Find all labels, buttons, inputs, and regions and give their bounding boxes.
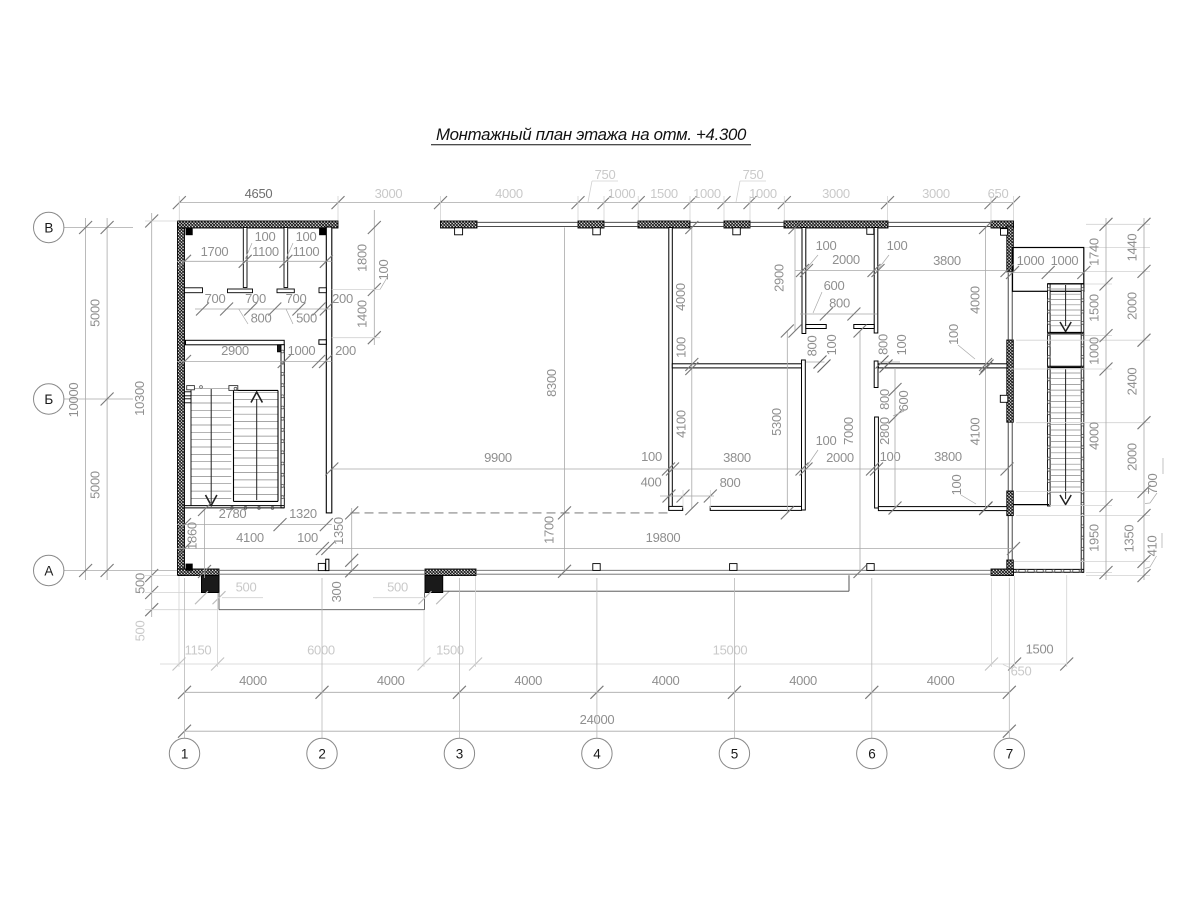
- svg-text:4000: 4000: [789, 673, 817, 688]
- svg-text:1740: 1740: [1087, 238, 1102, 266]
- svg-text:3000: 3000: [375, 186, 403, 201]
- svg-text:800: 800: [805, 336, 820, 357]
- svg-text:1000: 1000: [288, 343, 316, 358]
- svg-text:700: 700: [286, 291, 307, 306]
- svg-text:10000: 10000: [66, 383, 81, 418]
- svg-text:1950: 1950: [1087, 524, 1102, 552]
- svg-text:3800: 3800: [933, 253, 961, 268]
- svg-text:4000: 4000: [673, 283, 688, 311]
- svg-text:100: 100: [824, 335, 839, 356]
- svg-text:4000: 4000: [514, 673, 542, 688]
- svg-text:700: 700: [1145, 474, 1160, 495]
- svg-text:4100: 4100: [236, 530, 264, 545]
- svg-text:1500: 1500: [650, 186, 678, 201]
- svg-text:200: 200: [335, 343, 356, 358]
- svg-text:9900: 9900: [484, 450, 512, 465]
- svg-text:5000: 5000: [88, 471, 103, 499]
- svg-text:В: В: [44, 221, 53, 236]
- svg-text:1000: 1000: [1051, 253, 1079, 268]
- svg-text:2000: 2000: [1125, 292, 1140, 320]
- svg-text:2400: 2400: [1125, 368, 1140, 396]
- svg-text:100: 100: [376, 260, 391, 281]
- svg-text:100: 100: [816, 238, 837, 253]
- svg-text:1800: 1800: [355, 244, 370, 272]
- svg-text:2900: 2900: [772, 264, 787, 292]
- svg-text:100: 100: [296, 229, 317, 244]
- svg-text:4: 4: [593, 747, 601, 762]
- svg-text:1400: 1400: [355, 300, 370, 328]
- svg-text:3800: 3800: [723, 450, 751, 465]
- svg-text:400: 400: [641, 475, 662, 490]
- svg-text:100: 100: [816, 433, 837, 448]
- svg-text:2780: 2780: [219, 506, 247, 521]
- svg-text:А: А: [44, 564, 53, 579]
- svg-text:5000: 5000: [88, 299, 103, 327]
- svg-text:800: 800: [877, 389, 892, 410]
- svg-text:5: 5: [731, 747, 738, 762]
- svg-text:3800: 3800: [934, 449, 962, 464]
- svg-text:500: 500: [296, 311, 317, 326]
- svg-text:600: 600: [896, 391, 911, 412]
- svg-text:500: 500: [387, 580, 408, 595]
- svg-text:2000: 2000: [826, 450, 854, 465]
- svg-text:600: 600: [824, 278, 845, 293]
- svg-text:500: 500: [236, 580, 257, 595]
- svg-text:4000: 4000: [968, 286, 983, 314]
- svg-text:4000: 4000: [927, 673, 955, 688]
- svg-text:700: 700: [205, 291, 226, 306]
- svg-text:3000: 3000: [822, 186, 850, 201]
- svg-text:10300: 10300: [132, 381, 147, 416]
- svg-text:100: 100: [949, 475, 964, 496]
- svg-text:4000: 4000: [377, 673, 405, 688]
- svg-text:4650: 4650: [245, 186, 273, 201]
- svg-text:800: 800: [829, 296, 850, 311]
- svg-text:750: 750: [595, 167, 616, 182]
- svg-text:1100: 1100: [252, 244, 279, 259]
- svg-text:2800: 2800: [877, 417, 892, 445]
- svg-text:700: 700: [245, 291, 266, 306]
- svg-text:100: 100: [887, 238, 908, 253]
- svg-text:500: 500: [133, 573, 148, 594]
- svg-text:100: 100: [880, 449, 901, 464]
- svg-text:4000: 4000: [495, 186, 523, 201]
- svg-text:3: 3: [456, 747, 463, 762]
- svg-text:100: 100: [674, 337, 689, 358]
- svg-text:650: 650: [1011, 664, 1032, 679]
- svg-text:4100: 4100: [674, 410, 689, 438]
- svg-text:1000: 1000: [608, 186, 636, 201]
- svg-text:1500: 1500: [1087, 294, 1102, 322]
- svg-text:1440: 1440: [1125, 234, 1140, 262]
- svg-text:1150: 1150: [185, 643, 212, 658]
- svg-text:1000: 1000: [749, 186, 777, 201]
- svg-text:650: 650: [988, 186, 1009, 201]
- svg-text:750: 750: [743, 167, 764, 182]
- svg-text:4000: 4000: [652, 673, 680, 688]
- svg-text:3000: 3000: [922, 186, 950, 201]
- svg-text:1700: 1700: [542, 516, 557, 544]
- svg-text:410: 410: [1145, 536, 1160, 557]
- svg-text:800: 800: [720, 475, 741, 490]
- svg-text:1000: 1000: [1087, 337, 1102, 365]
- svg-text:8300: 8300: [544, 369, 559, 397]
- svg-text:6: 6: [868, 747, 875, 762]
- svg-text:7: 7: [1006, 747, 1013, 762]
- svg-text:200: 200: [332, 291, 353, 306]
- svg-text:100: 100: [946, 324, 961, 345]
- svg-text:Б: Б: [44, 392, 53, 407]
- svg-text:Монтажный план этажа на отм. +: Монтажный план этажа на отм. +4.300: [436, 125, 747, 144]
- svg-text:300: 300: [329, 582, 344, 603]
- svg-text:2: 2: [318, 747, 325, 762]
- svg-text:800: 800: [251, 311, 272, 326]
- svg-text:4000: 4000: [1087, 422, 1102, 450]
- svg-text:6000: 6000: [307, 643, 335, 658]
- svg-text:19800: 19800: [646, 530, 681, 545]
- svg-text:1320: 1320: [289, 506, 317, 521]
- svg-text:5300: 5300: [769, 408, 784, 436]
- svg-text:500: 500: [133, 621, 148, 642]
- svg-text:1000: 1000: [693, 186, 721, 201]
- svg-text:1700: 1700: [201, 244, 229, 259]
- svg-text:2000: 2000: [832, 252, 860, 267]
- svg-text:100: 100: [255, 229, 276, 244]
- svg-text:100: 100: [297, 530, 318, 545]
- svg-text:2900: 2900: [221, 343, 249, 358]
- svg-text:1350: 1350: [1122, 525, 1137, 553]
- svg-text:100: 100: [641, 449, 662, 464]
- svg-text:7000: 7000: [841, 417, 856, 445]
- svg-text:100: 100: [894, 335, 909, 356]
- svg-text:1000: 1000: [1017, 253, 1045, 268]
- svg-text:800: 800: [876, 334, 891, 355]
- svg-text:1500: 1500: [1026, 642, 1054, 657]
- svg-text:4100: 4100: [968, 418, 983, 446]
- svg-text:1: 1: [181, 747, 188, 762]
- svg-text:1100: 1100: [293, 244, 320, 259]
- svg-text:4000: 4000: [239, 673, 267, 688]
- svg-text:1350: 1350: [331, 517, 346, 545]
- svg-text:2000: 2000: [1125, 443, 1140, 471]
- svg-text:15000: 15000: [713, 643, 748, 658]
